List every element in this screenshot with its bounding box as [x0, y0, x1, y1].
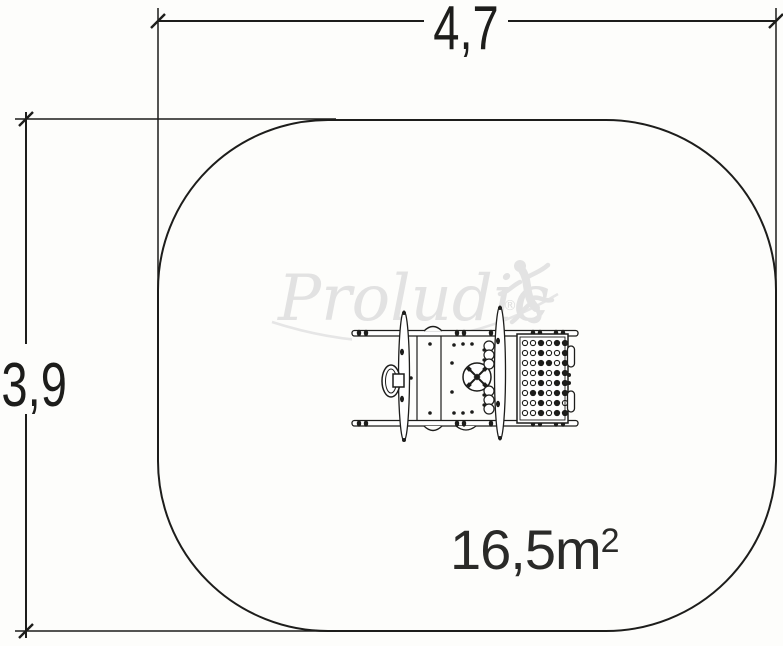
perforated-platform [517, 334, 575, 423]
plan-drawing-page: Proludic ® [0, 0, 783, 646]
grab-arch [456, 426, 476, 430]
plan-drawing-svg: Proludic ® [0, 0, 783, 646]
platform-handle [568, 391, 575, 412]
platform-handle [568, 346, 575, 367]
area-value: 16,5m [450, 518, 601, 581]
area-label: 16,5m2 [450, 517, 620, 582]
right-panel [495, 306, 506, 440]
area-exponent: 2 [601, 522, 620, 560]
grab-arch [424, 426, 442, 431]
dimension-width-label: 4,7 [431, 0, 501, 60]
watermark: Proludic ® [272, 260, 558, 342]
dimension-height-label: 3,9 [1, 355, 54, 417]
registered-mark-icon: ® [503, 298, 517, 314]
